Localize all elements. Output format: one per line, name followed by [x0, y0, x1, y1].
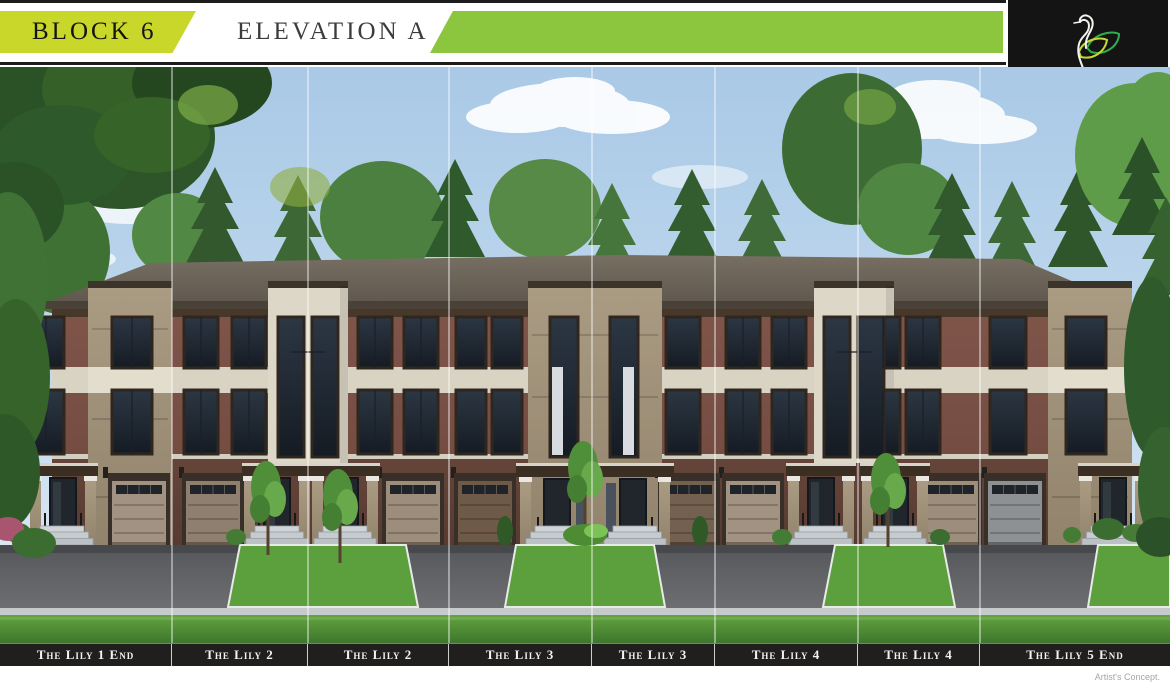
garage-door-unit8	[984, 473, 1046, 547]
lawn-highlight	[0, 617, 1170, 620]
unit-label-bar: The Lily 1 End The Lily 2 The Lily 2 The…	[0, 643, 1170, 666]
elevation-label: ELEVATION A	[237, 11, 429, 53]
unit-label-1: The Lily 1 End	[0, 644, 172, 666]
elevation-rendering	[0, 67, 1170, 643]
swan-leaf-icon	[1049, 10, 1127, 72]
brochure-page: BLOCK 6 ELEVATION A UPLANDS ofSWAN LAKE	[0, 0, 1170, 688]
unit-label-3: The Lily 2	[308, 644, 449, 666]
garage-door-unit7	[920, 473, 982, 547]
footer: Artist's Concept.	[0, 666, 1170, 688]
block-label: BLOCK 6	[0, 18, 156, 46]
unit-label-5: The Lily 3	[592, 644, 715, 666]
garage-door-unit1	[108, 473, 170, 547]
artists-concept-note: Artist's Concept.	[1095, 672, 1160, 682]
header-top-rule	[0, 0, 1006, 3]
block-ribbon: BLOCK 6	[0, 11, 196, 53]
accent-ribbon	[430, 11, 1003, 53]
unit-label-2: The Lily 2	[172, 644, 308, 666]
unit-label-4: The Lily 3	[449, 644, 592, 666]
sidewalk-curb	[0, 608, 1170, 615]
unit-label-7: The Lily 4	[858, 644, 980, 666]
header-bottom-rule	[0, 62, 1006, 65]
garage-door-unit3	[382, 473, 444, 547]
unit-label-6: The Lily 4	[715, 644, 858, 666]
unit-label-8: The Lily 5 End	[980, 644, 1170, 666]
